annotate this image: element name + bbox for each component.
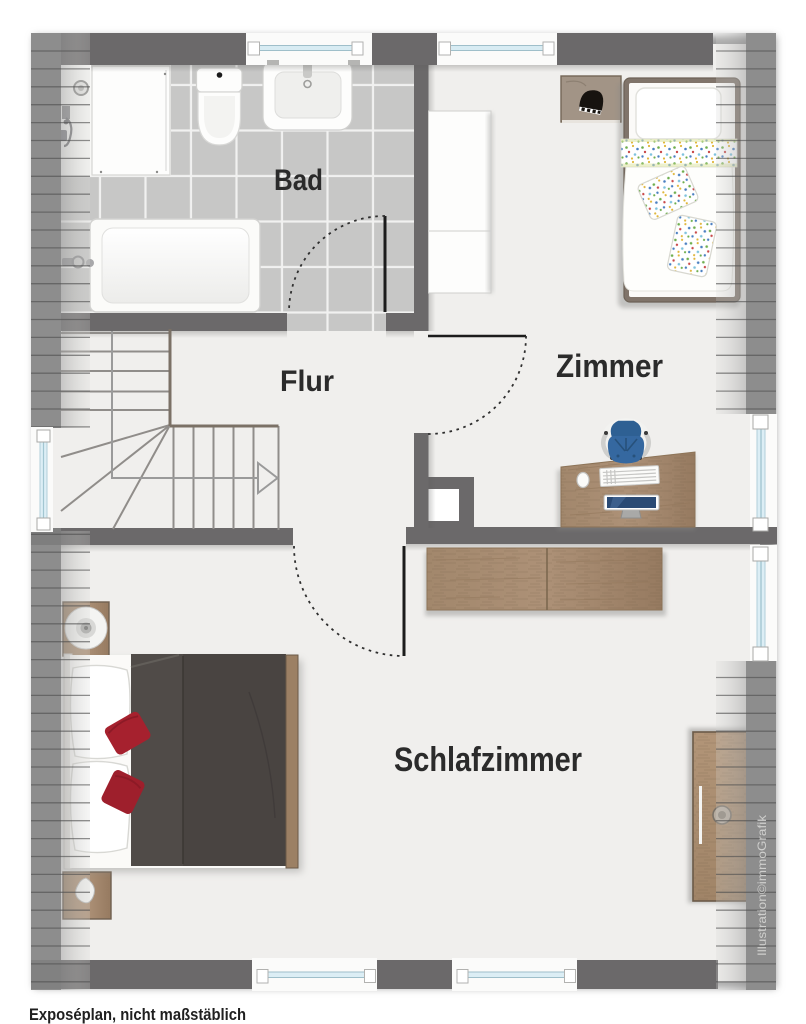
svg-text:Zimmer: Zimmer [556, 348, 663, 384]
svg-text:Exposéplan, nicht maßstäblich: Exposéplan, nicht maßstäblich [29, 1005, 246, 1024]
svg-text:Bad: Bad [274, 164, 323, 197]
svg-text:Schlafzimmer: Schlafzimmer [394, 741, 582, 779]
svg-text:Illustration©immoGrafik: Illustration©immoGrafik [755, 814, 769, 956]
svg-text:Flur: Flur [280, 365, 334, 398]
